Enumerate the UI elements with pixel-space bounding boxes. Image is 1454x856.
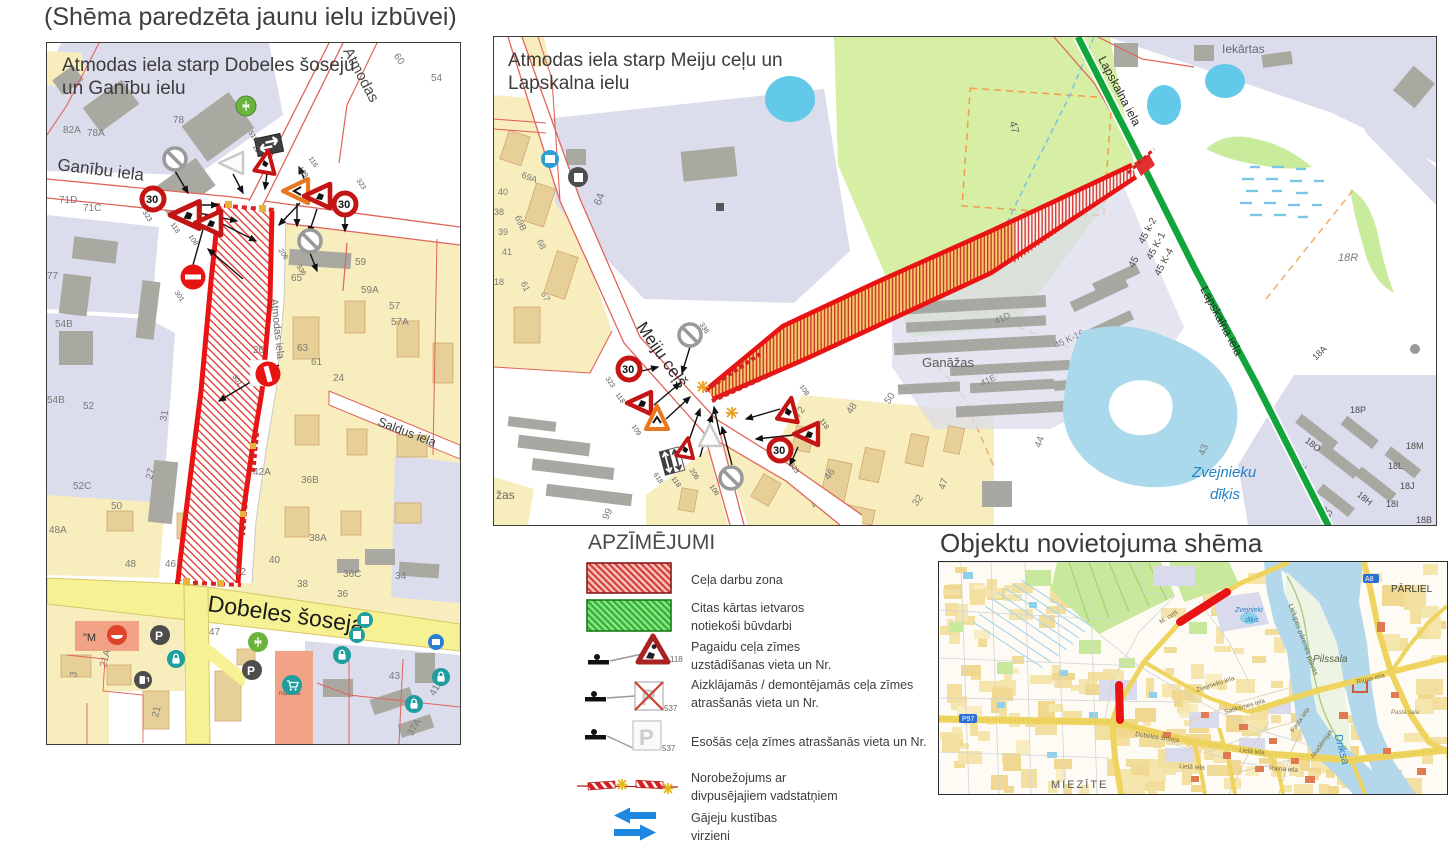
svg-text:A8: A8 xyxy=(1365,576,1374,583)
svg-text:48A: 48A xyxy=(49,525,67,536)
svg-text:77: 77 xyxy=(47,271,59,282)
svg-text:divpusējajiem vadstatņiem: divpusējajiem vadstatņiem xyxy=(691,789,838,803)
svg-text:18J: 18J xyxy=(1400,481,1415,491)
svg-text:dīķis: dīķis xyxy=(1245,617,1260,624)
svg-text:43: 43 xyxy=(389,671,401,682)
svg-text:46: 46 xyxy=(165,559,177,570)
svg-text:38: 38 xyxy=(297,579,309,590)
svg-text:18: 18 xyxy=(494,277,504,287)
svg-text:537: 537 xyxy=(664,704,678,713)
svg-text:78: 78 xyxy=(173,115,185,126)
svg-text:42A: 42A xyxy=(253,467,271,478)
svg-text:Lapskalna iela: Lapskalna iela xyxy=(1197,284,1246,359)
svg-text:P: P xyxy=(155,629,163,643)
svg-text:63: 63 xyxy=(297,343,309,354)
svg-text:108: 108 xyxy=(798,384,810,398)
svg-text:dīķis: dīķis xyxy=(1210,486,1241,503)
svg-text:18R: 18R xyxy=(1338,252,1358,264)
svg-text:57A: 57A xyxy=(391,317,409,328)
svg-text:18M: 18M xyxy=(1406,441,1424,451)
svg-text:26: 26 xyxy=(253,345,265,356)
svg-text:323: 323 xyxy=(604,376,616,390)
svg-text:un Ganību ielu: un Ganību ielu xyxy=(62,78,186,99)
svg-text:Ganāžas: Ganāžas xyxy=(922,355,975,370)
svg-text:40: 40 xyxy=(269,555,281,566)
svg-text:38A: 38A xyxy=(309,533,327,544)
svg-text:PĀRLIEL: PĀRLIEL xyxy=(1391,583,1433,595)
svg-text:APZĪMĒJUMI: APZĪMĒJUMI xyxy=(588,531,715,554)
svg-text:virzieni: virzieni xyxy=(691,829,730,843)
svg-text:48: 48 xyxy=(125,559,137,570)
svg-text:34: 34 xyxy=(395,571,407,582)
svg-text:P: P xyxy=(639,725,654,750)
svg-text:Atmodas iela starp Dobeles šos: Atmodas iela starp Dobeles šoseju xyxy=(62,55,355,76)
svg-text:39: 39 xyxy=(498,227,508,237)
svg-text:52: 52 xyxy=(83,401,95,412)
svg-text:82A: 82A xyxy=(63,125,81,136)
svg-text:36: 36 xyxy=(337,589,349,600)
svg-text:Pasta sala: Pasta sala xyxy=(1391,710,1420,716)
svg-text:Norobežojums ar: Norobežojums ar xyxy=(691,771,786,785)
svg-text:Pagaidu ceļa zīmes: Pagaidu ceļa zīmes xyxy=(691,640,800,654)
svg-text:P97: P97 xyxy=(962,716,975,723)
svg-text:41: 41 xyxy=(502,247,512,257)
svg-text:61: 61 xyxy=(311,357,323,368)
svg-text:42: 42 xyxy=(235,567,247,578)
svg-text:71D: 71D xyxy=(59,195,77,206)
svg-text:323: 323 xyxy=(355,178,367,192)
svg-text:Iekārtas: Iekārtas xyxy=(1222,42,1265,56)
svg-text:50: 50 xyxy=(111,501,123,512)
svg-text:Ceļa darbu zona: Ceļa darbu zona xyxy=(691,573,783,587)
svg-text:18L: 18L xyxy=(1388,461,1403,471)
svg-text:Esošās ceļa zīmes atrasšanās v: Esošās ceļa zīmes atrasšanās vieta un Nr… xyxy=(691,735,927,749)
svg-text:18I: 18I xyxy=(1386,499,1399,509)
svg-text:18A: 18A xyxy=(1310,344,1328,362)
svg-text:36C: 36C xyxy=(343,569,361,580)
svg-text:59: 59 xyxy=(355,257,367,268)
svg-text:40: 40 xyxy=(498,187,508,197)
svg-text:109: 109 xyxy=(630,424,642,438)
svg-text:71C: 71C xyxy=(83,203,101,214)
svg-text:24: 24 xyxy=(333,373,345,384)
svg-text:54B: 54B xyxy=(47,395,65,406)
svg-text:notiekoši būvdarbi: notiekoši būvdarbi xyxy=(691,619,792,633)
svg-text:54: 54 xyxy=(431,73,443,84)
svg-text:Pilssala: Pilssala xyxy=(1313,654,1348,665)
svg-text:44: 44 xyxy=(1033,435,1047,450)
svg-text:Lielā iela: Lielā iela xyxy=(1239,747,1266,757)
svg-text:P: P xyxy=(247,664,255,678)
svg-text:žas: žas xyxy=(496,488,515,502)
svg-text:118: 118 xyxy=(169,222,181,235)
svg-text:118: 118 xyxy=(614,392,626,405)
svg-text:108: 108 xyxy=(187,234,199,248)
svg-text:Atmodas iela starp Meiju ceļu: Atmodas iela starp Meiju ceļu un xyxy=(508,50,783,71)
svg-text:54B: 54B xyxy=(55,319,73,330)
svg-text:38: 38 xyxy=(494,207,504,217)
svg-text:Lapskalna ielu: Lapskalna ielu xyxy=(508,73,629,94)
svg-text:Aizklājamās / demontējamās ceļ: Aizklājamās / demontējamās ceļa zīmes xyxy=(691,678,913,692)
svg-text:Citas kārtas ietvaros: Citas kārtas ietvaros xyxy=(691,601,804,615)
svg-text:atrasšanās vieta un Nr.: atrasšanās vieta un Nr. xyxy=(691,696,819,710)
svg-text:MIEZĪTE: MIEZĪTE xyxy=(1051,779,1108,791)
svg-text:537: 537 xyxy=(662,744,676,753)
svg-text:57: 57 xyxy=(389,301,401,312)
svg-text:uzstādīšanas vieta un Nr.: uzstādīšanas vieta un Nr. xyxy=(691,658,831,672)
svg-text:18B: 18B xyxy=(1416,515,1432,525)
svg-text:52C: 52C xyxy=(73,481,91,492)
svg-text:"M: "M xyxy=(83,632,96,644)
svg-text:78A: 78A xyxy=(87,128,105,139)
svg-text:Gājeju kustības: Gājeju kustības xyxy=(691,811,777,825)
svg-text:116: 116 xyxy=(307,156,319,169)
svg-text:36B: 36B xyxy=(301,475,319,486)
svg-text:Zvejnieki: Zvejnieki xyxy=(1234,607,1263,614)
svg-text:47: 47 xyxy=(209,627,221,638)
svg-text:60: 60 xyxy=(391,51,407,67)
svg-text:59A: 59A xyxy=(361,285,379,296)
svg-text:Zvejnieku: Zvejnieku xyxy=(1191,464,1257,481)
svg-text:301: 301 xyxy=(173,290,185,304)
svg-text:18P: 18P xyxy=(1350,405,1366,415)
svg-text:118: 118 xyxy=(670,655,683,664)
